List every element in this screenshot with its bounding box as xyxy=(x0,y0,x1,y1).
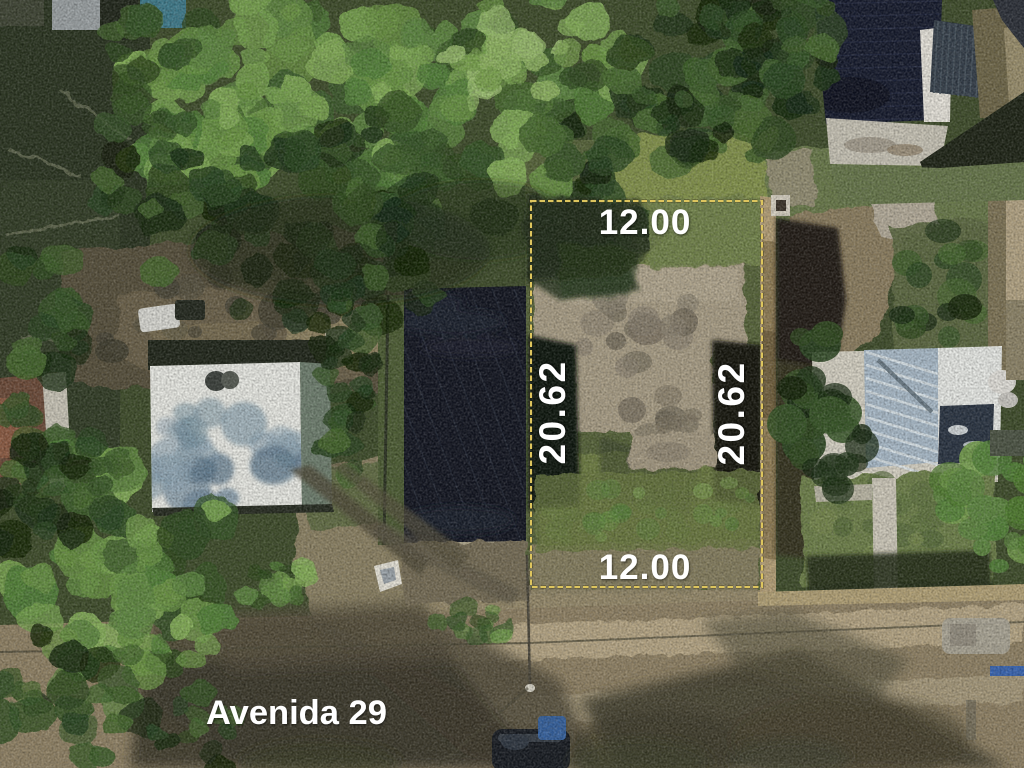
svg-text:20.62: 20.62 xyxy=(711,360,752,465)
svg-text:Avenida 29: Avenida 29 xyxy=(206,694,387,732)
svg-text:12.00: 12.00 xyxy=(599,203,692,242)
svg-text:12.00: 12.00 xyxy=(599,548,692,587)
svg-text:20.62: 20.62 xyxy=(532,359,573,464)
